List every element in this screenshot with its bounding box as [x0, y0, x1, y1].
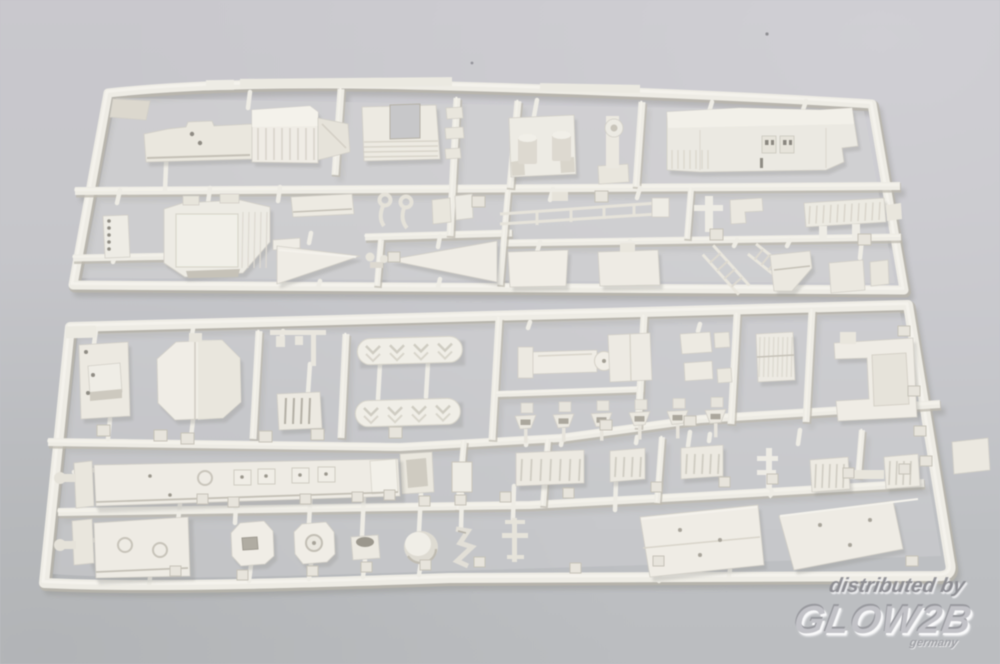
svg-text:distributed by: distributed by	[827, 574, 968, 597]
svg-text:germany: germany	[908, 637, 960, 649]
svg-text:GLOW2B: GLOW2B	[791, 598, 976, 642]
